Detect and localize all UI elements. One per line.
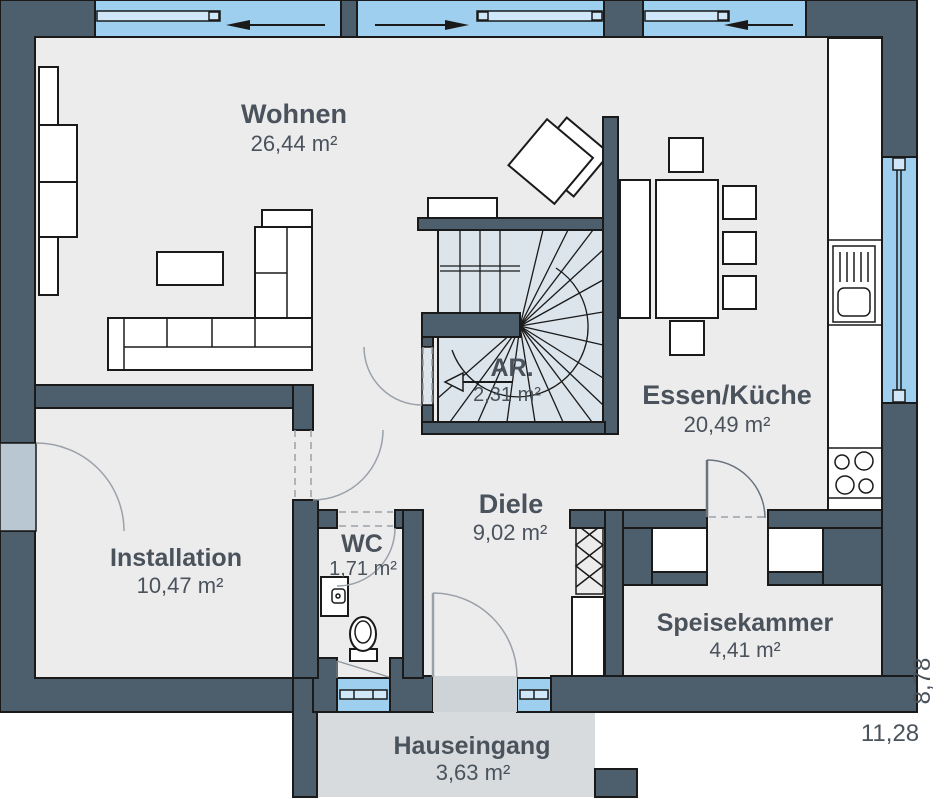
dimension-width: 11,28 bbox=[861, 720, 919, 747]
chair bbox=[723, 276, 756, 309]
toilet bbox=[350, 617, 377, 661]
wall-top-pillar-2 bbox=[604, 0, 643, 37]
chair bbox=[723, 186, 756, 219]
coffee-table bbox=[157, 252, 223, 285]
dining-table bbox=[656, 180, 718, 318]
area-speisekammer: 4,41 m² bbox=[709, 639, 780, 662]
wall-installation-wc bbox=[293, 500, 318, 678]
pantry-shelf-left bbox=[652, 528, 707, 572]
wall-pantry-web-3 bbox=[768, 572, 823, 585]
area-wc: 1,71 m² bbox=[329, 558, 397, 580]
wall-pantry-top-right bbox=[768, 510, 882, 528]
label-installation: Installation bbox=[110, 544, 242, 572]
area-essen-kueche: 20,49 m² bbox=[684, 412, 771, 437]
wall-installation-top bbox=[35, 385, 313, 408]
window-entrance-side bbox=[517, 678, 551, 712]
wall-pantry-web-1 bbox=[623, 528, 652, 585]
wc-sink bbox=[321, 577, 348, 616]
wall-top-pillar-1 bbox=[341, 0, 357, 37]
dimension-depth: 8,78 bbox=[909, 658, 936, 705]
label-speisekammer: Speisekammer bbox=[657, 609, 834, 637]
cabinet bbox=[572, 597, 604, 676]
porch-pillar bbox=[595, 769, 637, 797]
wall-pantry-web-2 bbox=[652, 572, 707, 585]
area-installation: 10,47 m² bbox=[137, 573, 224, 598]
wall-stair-right bbox=[603, 117, 618, 434]
wall-stair-left-a bbox=[422, 337, 433, 347]
wall-wc-right bbox=[403, 510, 423, 678]
kitchen-counter bbox=[828, 38, 882, 518]
chair bbox=[723, 232, 756, 264]
floor-plan-page: Wohnen 26,44 m² AR. 2,31 m² Essen/Küche … bbox=[0, 0, 950, 799]
wall-pantry-web-4 bbox=[823, 528, 882, 585]
pantry-shelf-right bbox=[768, 528, 823, 572]
area-diele: 9,02 m² bbox=[473, 520, 548, 545]
area-ar: 2,31 m² bbox=[473, 384, 541, 406]
sideboard bbox=[428, 198, 497, 218]
wall-stair-top bbox=[418, 218, 603, 230]
wall-pantry-top-left bbox=[570, 510, 707, 528]
area-hauseingang: 3,63 m² bbox=[436, 760, 511, 785]
wall-installation-corner bbox=[293, 385, 313, 430]
wall-stair-landing bbox=[422, 313, 520, 337]
wall-pantry-left bbox=[605, 510, 623, 676]
label-wc: WC bbox=[341, 530, 383, 558]
wall-wc-top-left bbox=[318, 510, 337, 528]
chair bbox=[670, 321, 704, 355]
wall-stair-bottom bbox=[422, 422, 605, 434]
chair bbox=[669, 138, 703, 172]
label-wohnen: Wohnen bbox=[241, 99, 347, 129]
area-wohnen: 26,44 m² bbox=[251, 131, 338, 156]
window-right bbox=[882, 157, 917, 403]
floor-plan-canvas: Wohnen 26,44 m² AR. 2,31 m² Essen/Küche … bbox=[0, 0, 950, 799]
wall-bottom-right bbox=[551, 676, 917, 712]
label-diele: Diele bbox=[479, 489, 544, 519]
label-essen-kueche: Essen/Küche bbox=[642, 380, 812, 410]
wall-stair-left-b bbox=[422, 405, 433, 422]
window-wc bbox=[337, 678, 390, 712]
label-hauseingang: Hauseingang bbox=[394, 732, 551, 760]
dining-bench bbox=[620, 180, 650, 318]
label-ar: AR. bbox=[490, 354, 533, 382]
